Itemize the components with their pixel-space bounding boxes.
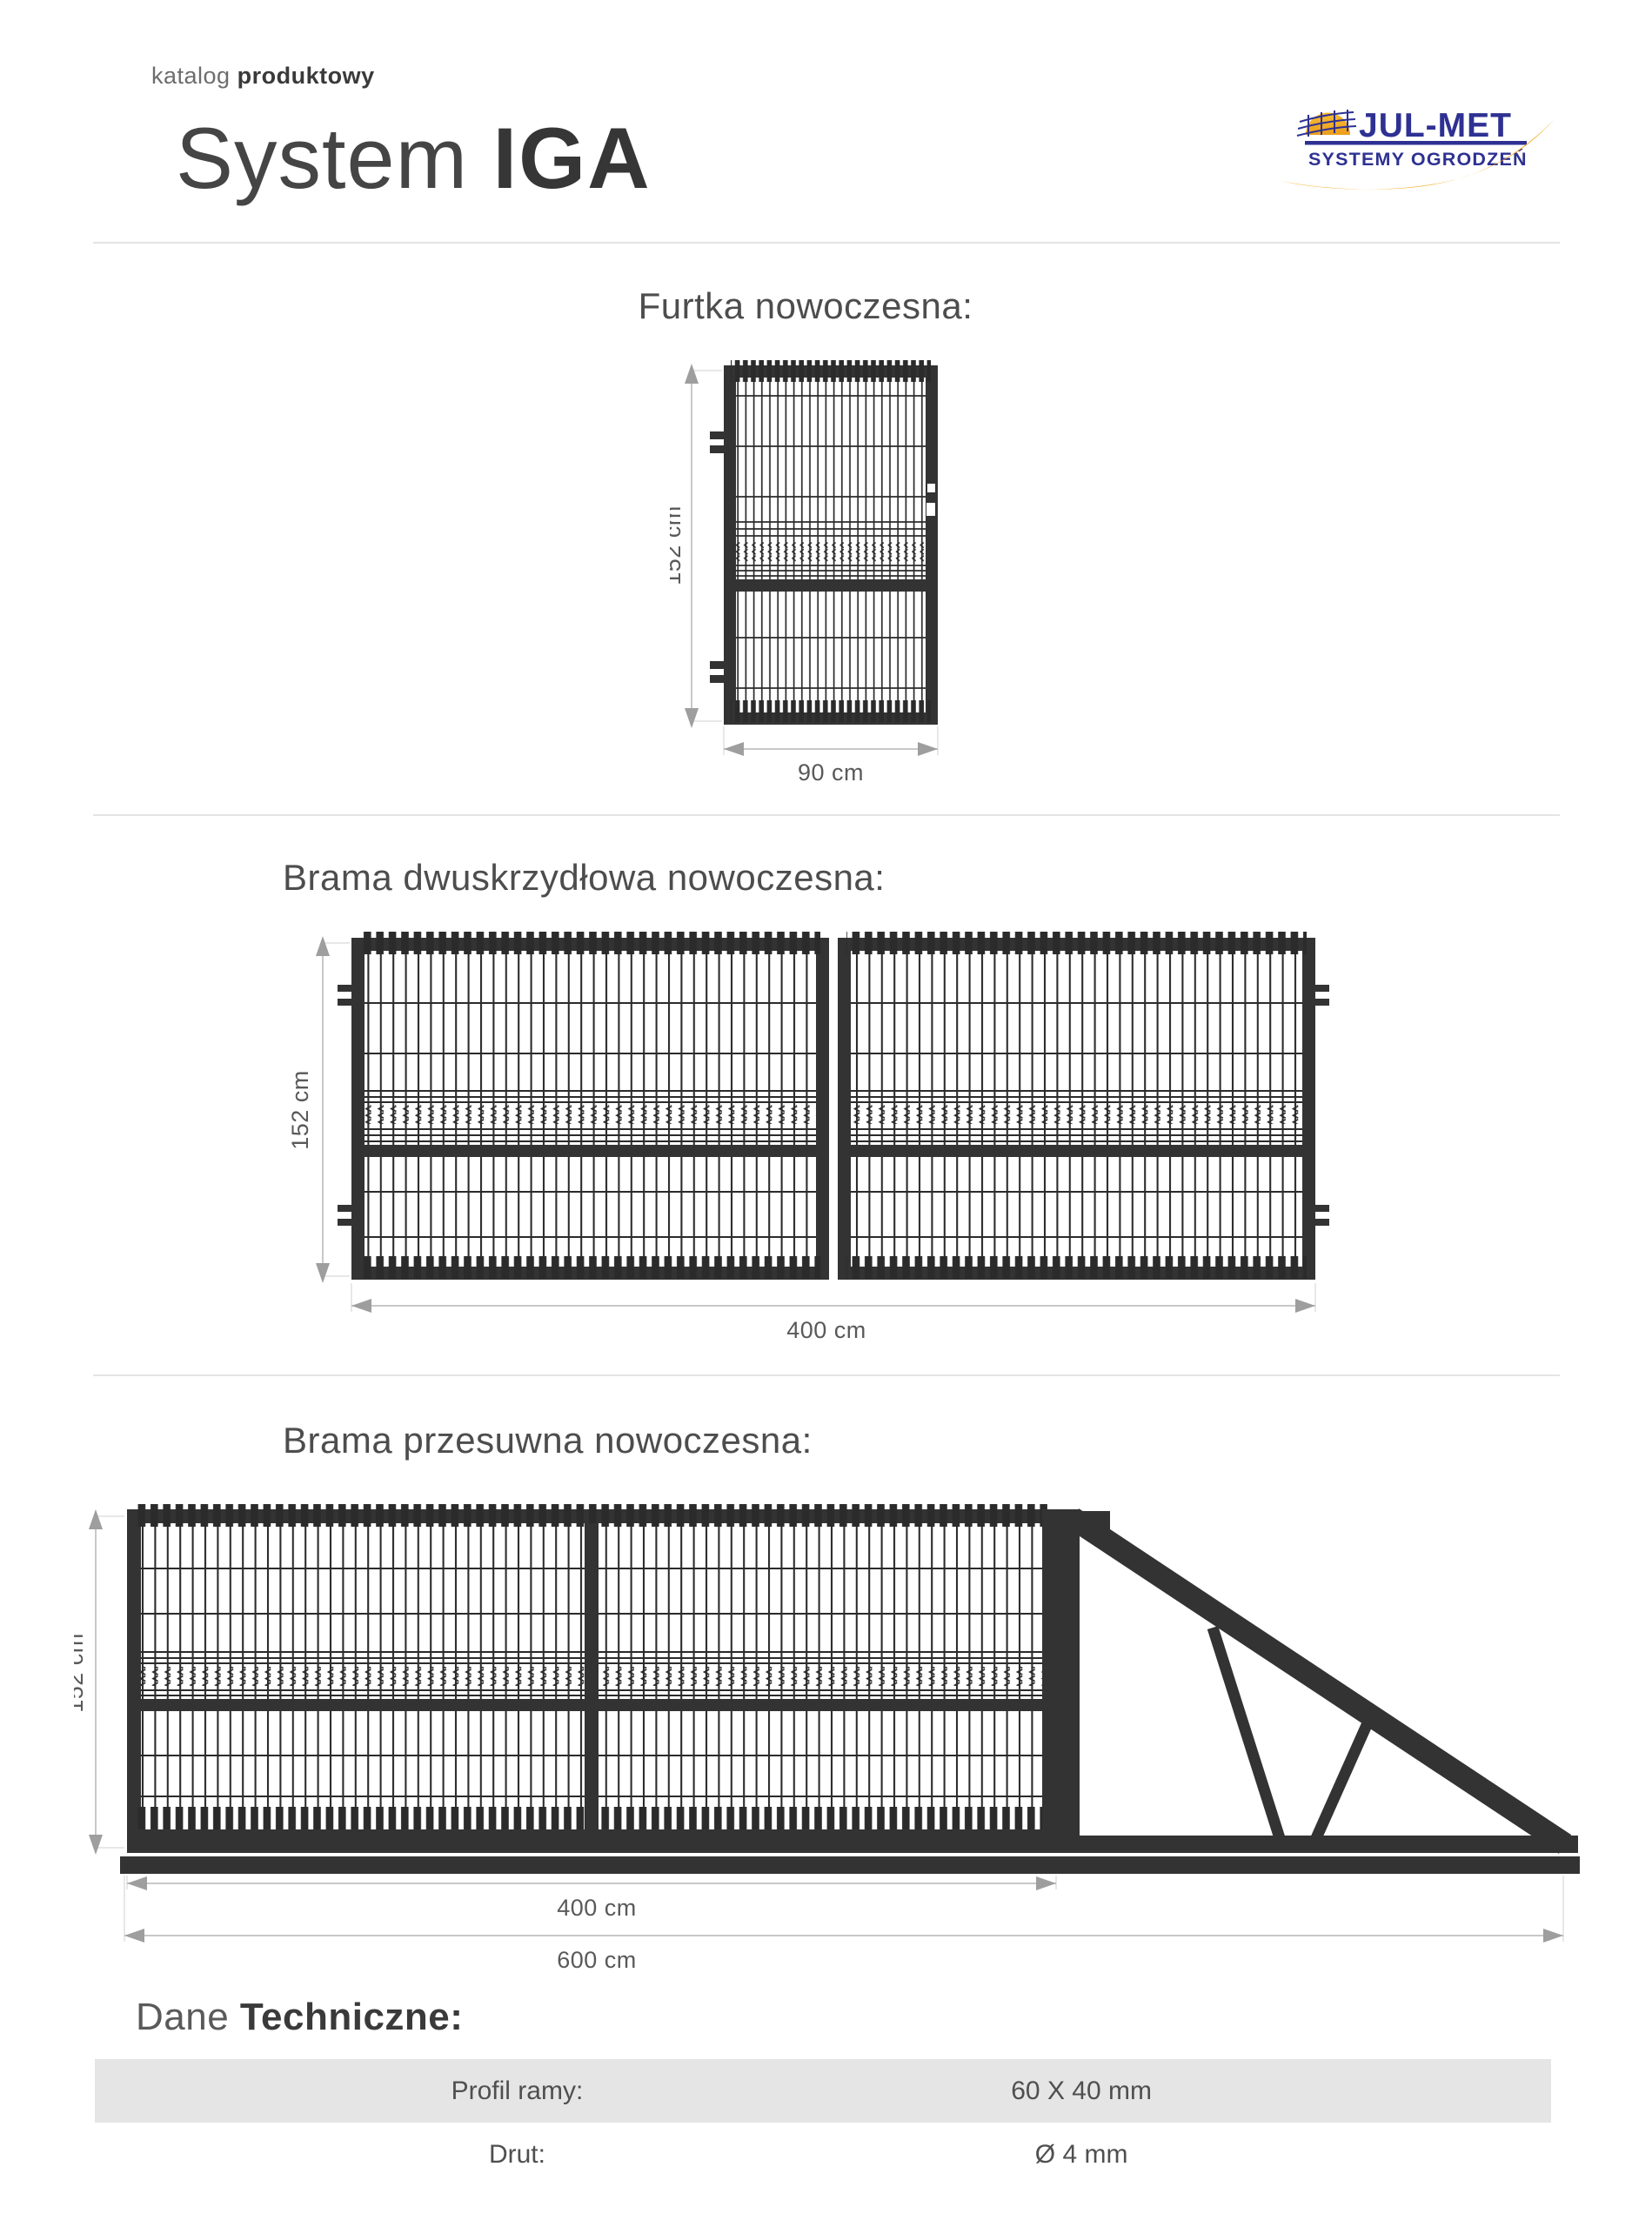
sliding-gate-bottom-rail xyxy=(120,1856,1580,1874)
logo-brand-text: JUL-MET xyxy=(1359,107,1512,144)
tech-heading-bold: Techniczne: xyxy=(240,1996,464,2038)
company-logo: JUL-MET SYSTEMY OGRODZEŃ xyxy=(1274,97,1557,221)
double-gate-width-dimension: 400 cm xyxy=(351,1283,1315,1343)
page-title-light: System xyxy=(176,110,468,206)
furtka-gate xyxy=(710,360,938,725)
furtka-width-dimension: 90 cm xyxy=(724,726,938,786)
sliding-gate-total-width-label: 600 cm xyxy=(557,1947,637,1973)
julmet-logo-icon: JUL-MET SYSTEMY OGRODZEŃ xyxy=(1274,97,1557,221)
tech-data-heading: Dane Techniczne: xyxy=(136,1996,463,2039)
double-gate-height-label: 152 cm xyxy=(287,1070,313,1150)
tech-data-table: Profil ramy: 60 X 40 mm Drut: Ø 4 mm xyxy=(95,2059,1551,2186)
furtka-top-comb xyxy=(731,360,931,382)
tech-heading-light: Dane xyxy=(136,1996,229,2038)
furtka-mid-rail xyxy=(736,579,926,592)
sliding-gate-body xyxy=(127,1504,1056,1853)
tech-row-value: 60 X 40 mm xyxy=(940,2077,1223,2106)
sun-fence-icon xyxy=(1297,110,1356,137)
table-row: Drut: Ø 4 mm xyxy=(95,2123,1551,2186)
page-title: System IGA xyxy=(176,111,652,206)
catalog-eyebrow: katalog produktowy xyxy=(151,63,375,90)
table-row: Profil ramy: 60 X 40 mm xyxy=(95,2059,1551,2123)
furtka-width-label: 90 cm xyxy=(798,759,864,786)
furtka-hinges xyxy=(710,431,726,683)
sliding-gate-width-label: 400 cm xyxy=(557,1895,637,1921)
furtka-height-dimension: 152 cm xyxy=(670,364,722,728)
sliding-gate-total-width-dimension: 600 cm xyxy=(124,1876,1563,1973)
tech-row-value: Ø 4 mm xyxy=(940,2140,1223,2170)
double-gate-right-leaf xyxy=(838,932,1329,1280)
double-gate-drawing: 152 cm xyxy=(287,920,1340,1355)
sliding-gate-drawing: 152 cm xyxy=(74,1490,1592,1990)
sliding-gate-height-dimension: 152 cm xyxy=(74,1509,124,1855)
header-divider xyxy=(93,242,1560,244)
sliding-gate-center-post xyxy=(585,1523,599,1829)
furtka-bottom-comb xyxy=(731,700,931,722)
page-title-bold: IGA xyxy=(493,110,652,206)
double-gate-width-label: 400 cm xyxy=(786,1317,866,1343)
eyebrow-bold-text: produktowy xyxy=(237,63,375,89)
logo-tagline-text: SYSTEMY OGRODZEŃ xyxy=(1308,148,1528,170)
logo-underline xyxy=(1305,141,1527,145)
tech-row-label: Profil ramy: xyxy=(95,2077,940,2106)
section-divider-2 xyxy=(93,1374,1560,1376)
tech-row-label: Drut: xyxy=(95,2140,940,2170)
section-heading-przesuwna: Brama przesuwna nowoczesna: xyxy=(283,1420,813,1461)
section-heading-dwuskrzydlowa: Brama dwuskrzydłowa nowoczesna: xyxy=(283,857,885,899)
furtka-zigzag-band xyxy=(736,542,926,562)
catalog-page: katalog produktowy System IGA JUL-MET xyxy=(0,0,1652,2227)
section-heading-furtka: Furtka nowoczesna: xyxy=(0,285,1611,327)
furtka-height-label: 152 cm xyxy=(670,505,686,585)
section-divider-1 xyxy=(93,814,1560,816)
furtka-drawing: 152 cm xyxy=(670,357,948,792)
double-gate-left-leaf xyxy=(338,932,829,1280)
eyebrow-light-text: katalog xyxy=(151,63,231,89)
sliding-gate-triangle xyxy=(1042,1509,1578,1853)
sliding-gate-height-label: 152 cm xyxy=(74,1633,88,1713)
sliding-gate-width-dimension: 400 cm xyxy=(127,1876,1056,1921)
